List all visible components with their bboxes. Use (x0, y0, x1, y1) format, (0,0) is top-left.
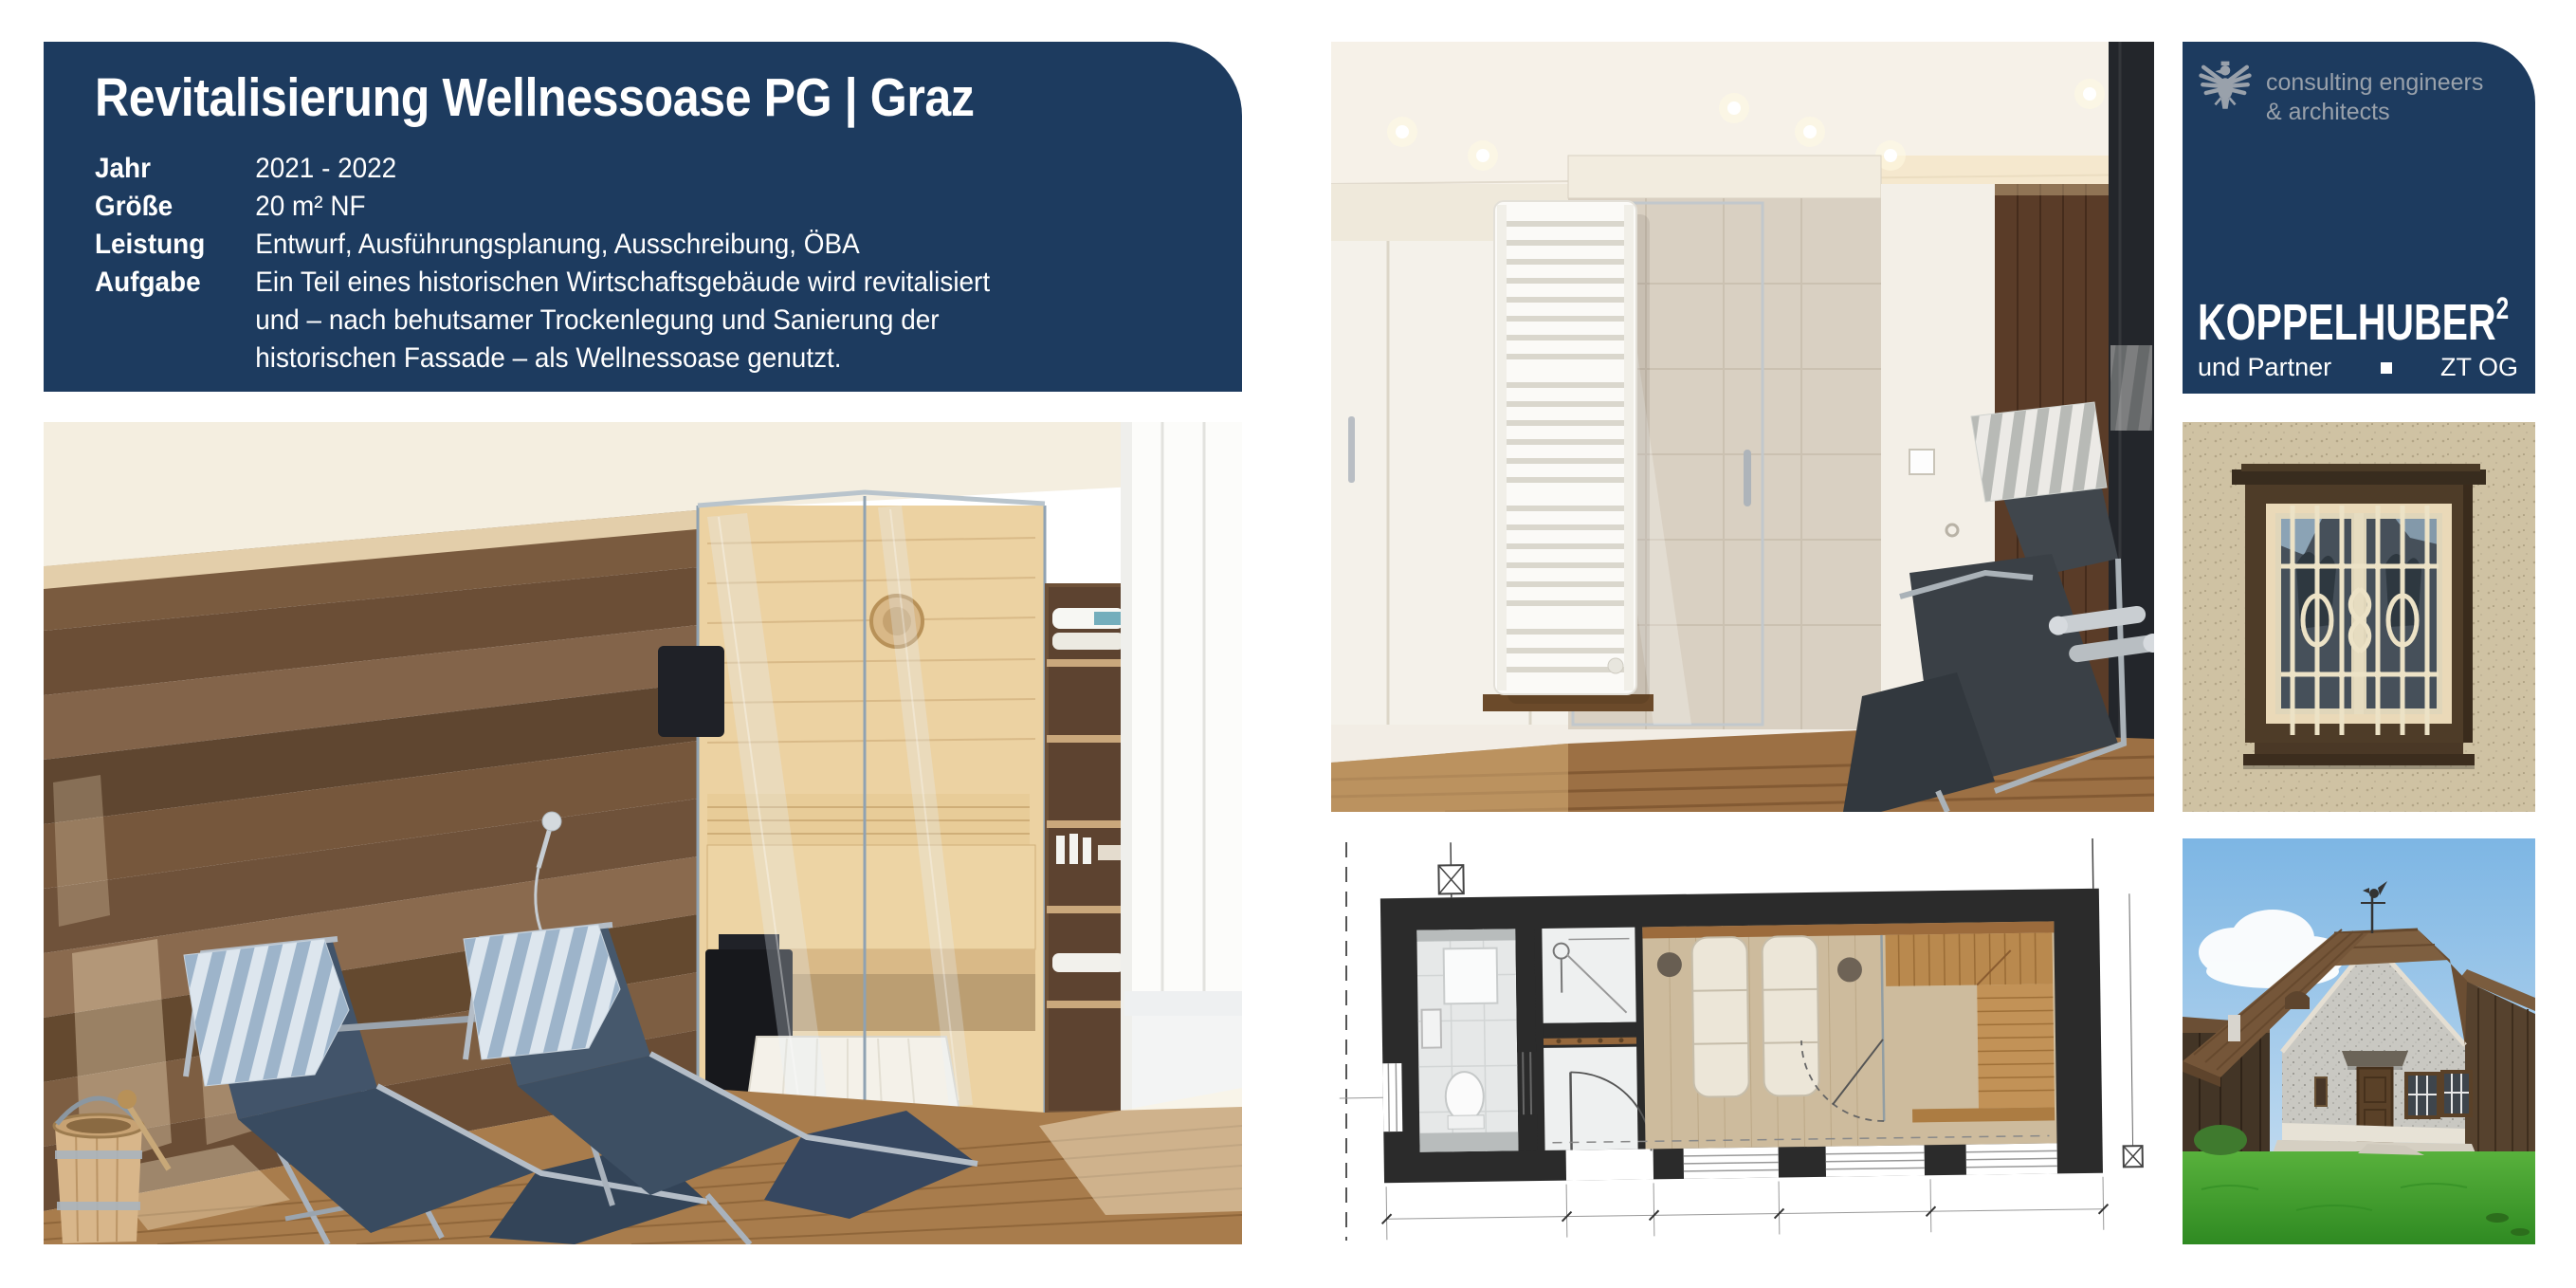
fact-label: Leistung (95, 226, 255, 264)
fact-row-aufgabe: Aufgabe Ein Teil eines historischen Wirt… (95, 264, 1126, 377)
fact-value: Entwurf, Ausführungsplanung, Ausschreibu… (255, 226, 859, 264)
bathroom-photo (1331, 42, 2154, 812)
company-subline-right: ZT OG (2440, 353, 2518, 382)
fact-value: 2021 - 2022 (255, 150, 396, 188)
austrian-eagle-icon (2198, 57, 2253, 116)
company-name: KOPPELHUBER2 (2198, 293, 2509, 348)
square-separator-icon (2381, 362, 2392, 374)
page-title: Revitalisierung Wellnessoase PG | Graz (95, 66, 1071, 129)
project-header: Revitalisierung Wellnessoase PG | Graz J… (44, 42, 1242, 392)
fact-value: Ein Teil eines historischen Wirtschaftsg… (255, 264, 990, 377)
page: Revitalisierung Wellnessoase PG | Graz J… (0, 0, 2576, 1288)
company-logo-box: consulting engineers & architects KOPPEL… (2183, 42, 2535, 394)
logo-top: consulting engineers & architects (2198, 57, 2483, 127)
fact-row-leistung: Leistung Entwurf, Ausführungsplanung, Au… (95, 226, 1126, 264)
company-subline: und Partner ZT OG (2198, 353, 2518, 382)
floor-plan (1331, 838, 2154, 1244)
fact-label: Größe (95, 188, 255, 226)
fact-row-groesse: Größe 20 m² NF (95, 188, 1126, 226)
fact-label: Jahr (95, 150, 255, 188)
facade-window-photo (2183, 422, 2535, 812)
farmhouse-photo (2183, 838, 2535, 1244)
fact-label: Aufgabe (95, 264, 255, 377)
sauna-room-photo (44, 422, 1242, 1244)
logo-tagline: consulting engineers & architects (2266, 68, 2483, 127)
fact-value: 20 m² NF (255, 188, 365, 226)
company-subline-left: und Partner (2198, 353, 2331, 382)
project-facts: Jahr 2021 - 2022 Größe 20 m² NF Leistung… (95, 150, 1126, 377)
fact-row-jahr: Jahr 2021 - 2022 (95, 150, 1126, 188)
